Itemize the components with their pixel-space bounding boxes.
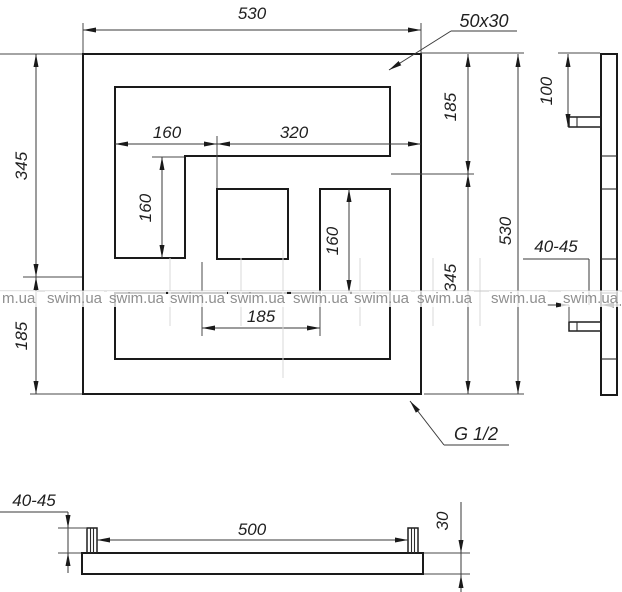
dim-500-label: 500: [238, 520, 267, 539]
dim-345-left-label: 345: [12, 151, 31, 180]
bottom-right-bracket: [408, 528, 418, 553]
bottom-profile-bar: [82, 553, 423, 574]
dim-345-right-label: 345: [441, 263, 460, 292]
watermark-text: swim.ua: [45, 291, 104, 307]
watermark-text: swim.ua: [489, 291, 548, 307]
dim-160-left-slot-label: 160: [136, 193, 155, 222]
watermark-text: m.ua: [0, 291, 37, 307]
thread-callout-label: G 1/2: [454, 424, 498, 444]
watermark-text: swim.ua: [561, 291, 620, 307]
dim-320-inner-label: 320: [280, 123, 309, 142]
dim-530-right: 530: [421, 53, 524, 394]
front-opening-center: [217, 189, 288, 259]
dim-40-45-side-label: 40-45: [534, 237, 578, 256]
dim-160-right-slot-label: 160: [323, 226, 342, 255]
watermark-text: swim.ua: [352, 291, 411, 307]
callout-profile-50x30: 50x30: [389, 11, 517, 70]
dim-40-45-bottom: 40-45: [0, 491, 86, 573]
dim-100-side: 100: [537, 53, 600, 127]
side-profile-bar: [601, 54, 617, 395]
dim-160-inner-label: 160: [153, 123, 182, 142]
dim-160-left-slot: 160: [136, 157, 184, 258]
dim-345-left: 345: [0, 54, 82, 277]
watermark-text: swim.ua: [107, 291, 166, 307]
dim-185-right: 185: [391, 54, 474, 174]
technical-drawing-towel-rail: 530 345 185 160 320 160: [0, 0, 622, 592]
watermark-text: swim.ua: [228, 291, 287, 307]
side-lower-connector: [569, 322, 601, 331]
front-outline: [83, 54, 421, 394]
dim-530-top-label: 530: [238, 4, 267, 23]
profile-callout-label: 50x30: [459, 11, 508, 31]
dim-160-right-slot: 160: [322, 189, 390, 293]
dim-185-left-label: 185: [12, 321, 31, 350]
dim-500-bottom: 500: [97, 520, 408, 540]
bottom-left-bracket: [87, 528, 97, 553]
callout-thread-g12: G 1/2: [410, 401, 509, 445]
dim-345-right: 345: [441, 174, 468, 394]
dim-40-45-bottom-label: 40-45: [12, 491, 56, 510]
leader-arrow: [410, 401, 444, 445]
dim-185-bottom-label: 185: [247, 307, 276, 326]
watermark-text: swim.ua: [291, 291, 350, 307]
dim-185-right-label: 185: [441, 92, 460, 121]
bracket-outline: [87, 528, 97, 553]
side-upper-connector: [569, 117, 601, 127]
bottom-view: 500 40-45 30: [0, 491, 470, 592]
dim-100-label: 100: [537, 76, 556, 105]
dim-30-bottom: 30: [424, 502, 470, 592]
dim-530-top: 530: [83, 4, 421, 53]
bracket-outline: [408, 528, 418, 553]
dim-40-45-side: 40-45: [523, 237, 621, 321]
dim-30-label: 30: [433, 511, 452, 530]
dim-530-right-label: 530: [496, 216, 515, 245]
watermark-text: swim.ua: [168, 291, 227, 307]
watermark-text: swim.ua: [415, 291, 474, 307]
front-view: 530 345 185 160 320 160: [0, 4, 524, 445]
side-view: 100 40-45: [523, 53, 621, 395]
